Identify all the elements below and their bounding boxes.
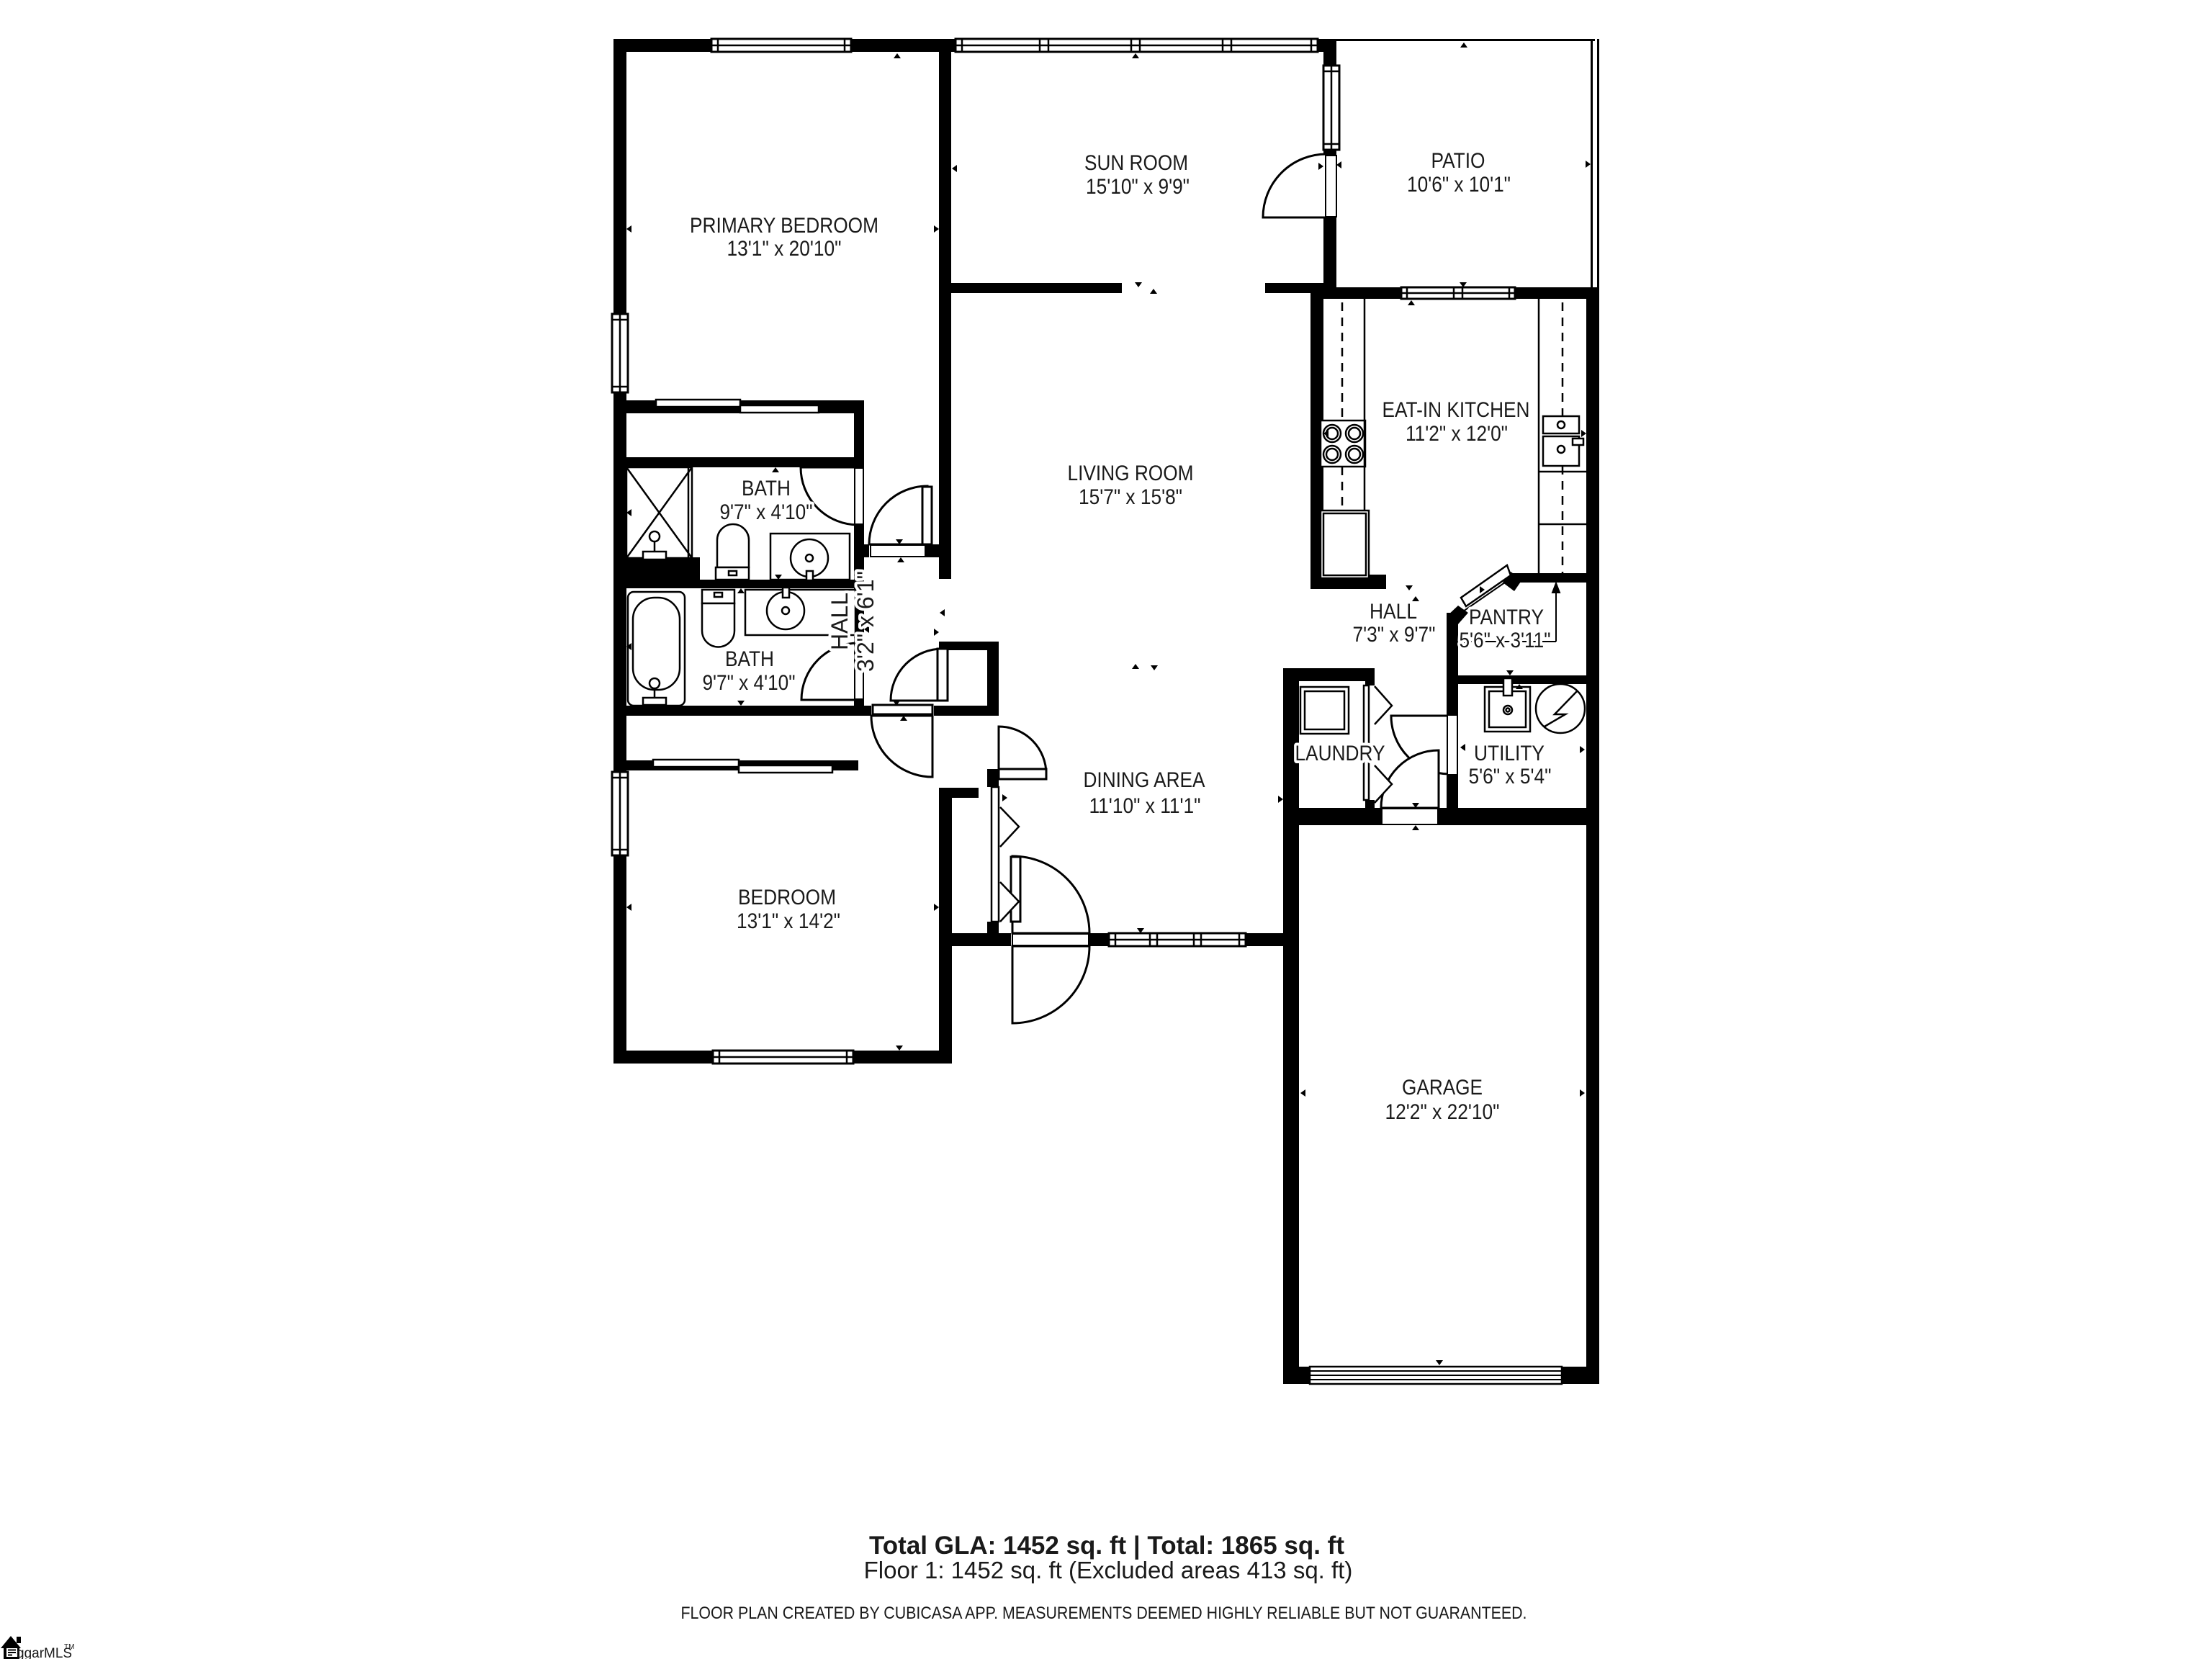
svg-text:EAT-IN KITCHEN: EAT-IN KITCHEN [1382,398,1530,422]
svg-text:BEDROOM: BEDROOM [738,886,836,909]
svg-text:TM: TM [64,1643,74,1651]
svg-text:10'6" x 10'1": 10'6" x 10'1" [1407,173,1511,197]
svg-text:PANTRY: PANTRY [1469,606,1544,629]
svg-text:3'2" x 6'1": 3'2" x 6'1" [853,571,878,672]
svg-text:PRIMARY BEDROOM: PRIMARY BEDROOM [690,214,878,238]
svg-text:PATIO: PATIO [1431,149,1485,173]
svg-text:Total GLA: 1452 sq. ft | Total: Total GLA: 1452 sq. ft | Total: 1865 sq.… [869,1532,1344,1560]
svg-text:12'2" x 22'10": 12'2" x 22'10" [1385,1100,1500,1124]
svg-text:HALL: HALL [1370,600,1417,624]
svg-text:7'3" x 9'7": 7'3" x 9'7" [1353,623,1436,647]
svg-text:LAUNDRY: LAUNDRY [1295,742,1385,765]
svg-text:15'10" x 9'9": 15'10" x 9'9" [1086,175,1190,199]
svg-text:9'7" x 4'10": 9'7" x 4'10" [703,671,796,695]
svg-text:GARAGE: GARAGE [1402,1076,1483,1100]
svg-text:13'1" x 14'2": 13'1" x 14'2" [737,909,840,933]
svg-text:13'1" x 20'10": 13'1" x 20'10" [727,237,842,261]
svg-text:11'10" x 11'1": 11'10" x 11'1" [1089,794,1201,818]
svg-text:DINING AREA: DINING AREA [1084,768,1205,792]
svg-text:9'7" x 4'10": 9'7" x 4'10" [720,500,813,524]
svg-text:11'2" x 12'0": 11'2" x 12'0" [1406,422,1508,446]
svg-text:HALL: HALL [827,593,853,650]
svg-text:5'6" x 5'4": 5'6" x 5'4" [1469,765,1552,788]
svg-text:SUN ROOM: SUN ROOM [1084,151,1188,175]
svg-text:5'6" x 3'11": 5'6" x 3'11" [1460,629,1551,652]
svg-text:UTILITY: UTILITY [1474,742,1545,765]
svg-text:Floor 1: 1452 sq. ft (Excluded: Floor 1: 1452 sq. ft (Excluded areas 413… [864,1557,1353,1583]
svg-text:BATH: BATH [742,477,791,500]
svg-text:FLOOR PLAN CREATED BY CUBICASA: FLOOR PLAN CREATED BY CUBICASA APP. MEAS… [681,1604,1527,1623]
svg-text:15'7" x 15'8": 15'7" x 15'8" [1079,485,1182,509]
svg-text:BATH: BATH [725,647,774,671]
svg-text:LIVING ROOM: LIVING ROOM [1068,462,1194,485]
